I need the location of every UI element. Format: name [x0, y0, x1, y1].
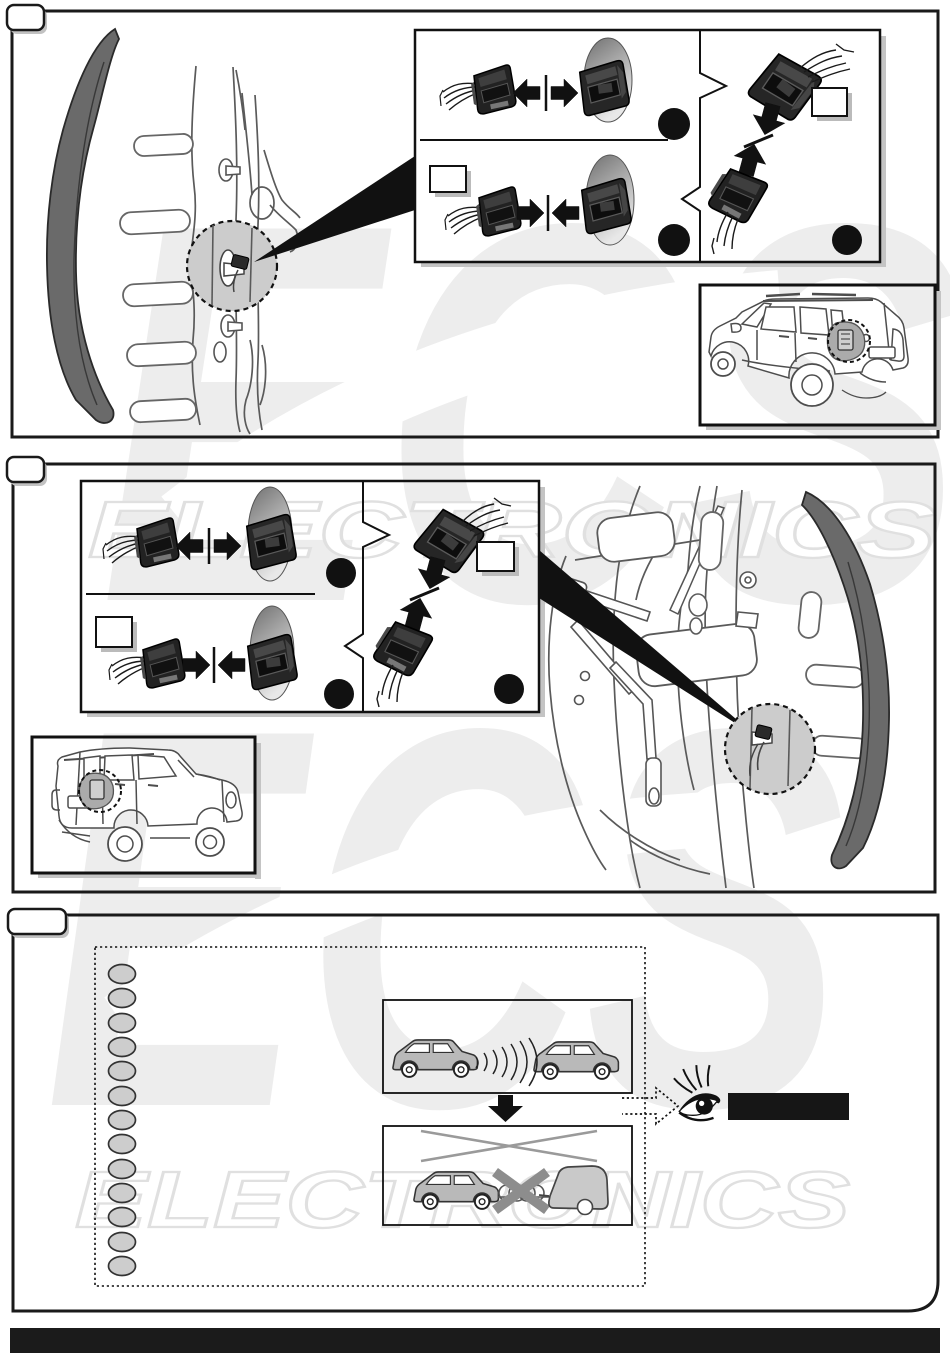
svg-text:ECS: ECS [45, 616, 846, 1220]
